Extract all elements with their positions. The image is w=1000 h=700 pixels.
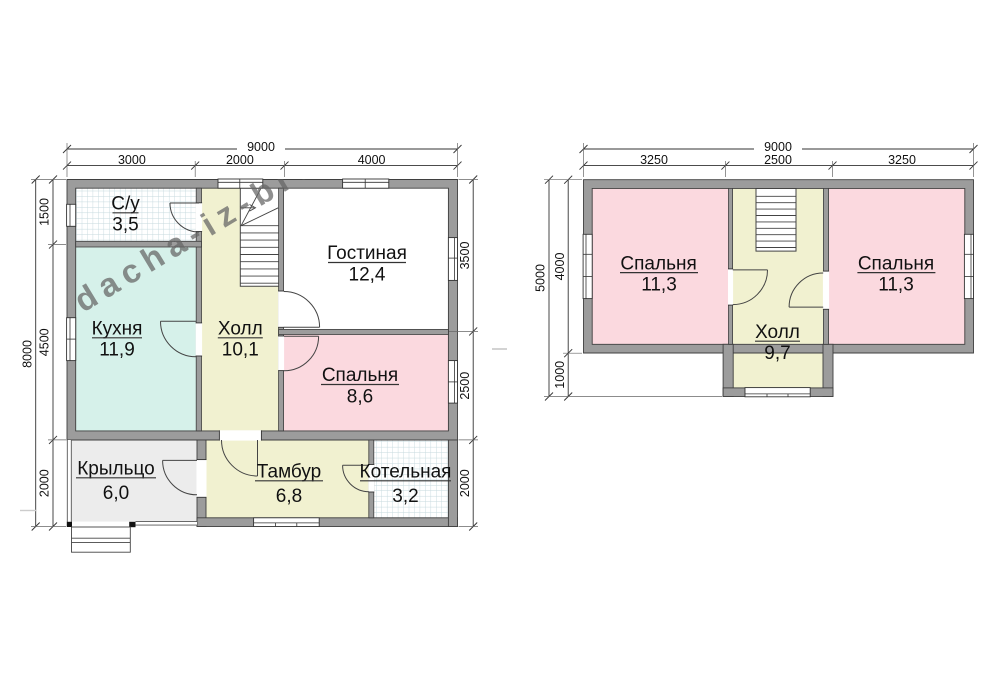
svg-text:11,3: 11,3 [878,274,914,295]
svg-text:11,3: 11,3 [641,274,677,295]
svg-text:3250: 3250 [888,153,916,167]
svg-text:3,5: 3,5 [112,215,138,236]
svg-text:9,7: 9,7 [764,343,790,364]
svg-text:2000: 2000 [38,469,52,497]
svg-text:Спальня: Спальня [858,253,934,274]
svg-text:11,9: 11,9 [99,340,135,361]
svg-text:3000: 3000 [118,153,146,167]
svg-text:8,6: 8,6 [347,386,373,407]
svg-text:1000: 1000 [553,361,567,389]
svg-text:Кухня: Кухня [92,319,143,340]
svg-text:4500: 4500 [38,328,52,356]
svg-text:3,2: 3,2 [392,486,418,507]
svg-text:Гостиная: Гостиная [327,243,407,264]
svg-text:Котельная: Котельная [360,462,452,483]
svg-text:4000: 4000 [553,253,567,281]
svg-text:2500: 2500 [764,153,792,167]
svg-text:Холл: Холл [218,319,263,340]
svg-text:Холл: Холл [755,322,800,343]
svg-text:Спальня: Спальня [620,253,696,274]
svg-text:С/у: С/у [111,194,140,215]
svg-text:5000: 5000 [534,264,548,292]
svg-text:1500: 1500 [38,198,52,226]
svg-text:Спальня: Спальня [322,365,398,386]
svg-text:2000: 2000 [458,469,472,497]
svg-text:10,1: 10,1 [222,340,259,361]
svg-text:8000: 8000 [21,340,35,368]
svg-text:6,8: 6,8 [276,486,302,507]
svg-text:Тамбур: Тамбур [257,462,322,483]
svg-text:3500: 3500 [458,242,472,270]
svg-text:2000: 2000 [226,153,254,167]
svg-text:3250: 3250 [640,153,668,167]
svg-text:9000: 9000 [247,140,275,154]
svg-text:9000: 9000 [764,140,792,154]
svg-text:2500: 2500 [458,372,472,400]
svg-text:12,4: 12,4 [349,265,386,286]
svg-text:4000: 4000 [358,153,386,167]
svg-text:Крыльцо: Крыльцо [77,459,155,480]
svg-text:6,0: 6,0 [103,483,129,504]
